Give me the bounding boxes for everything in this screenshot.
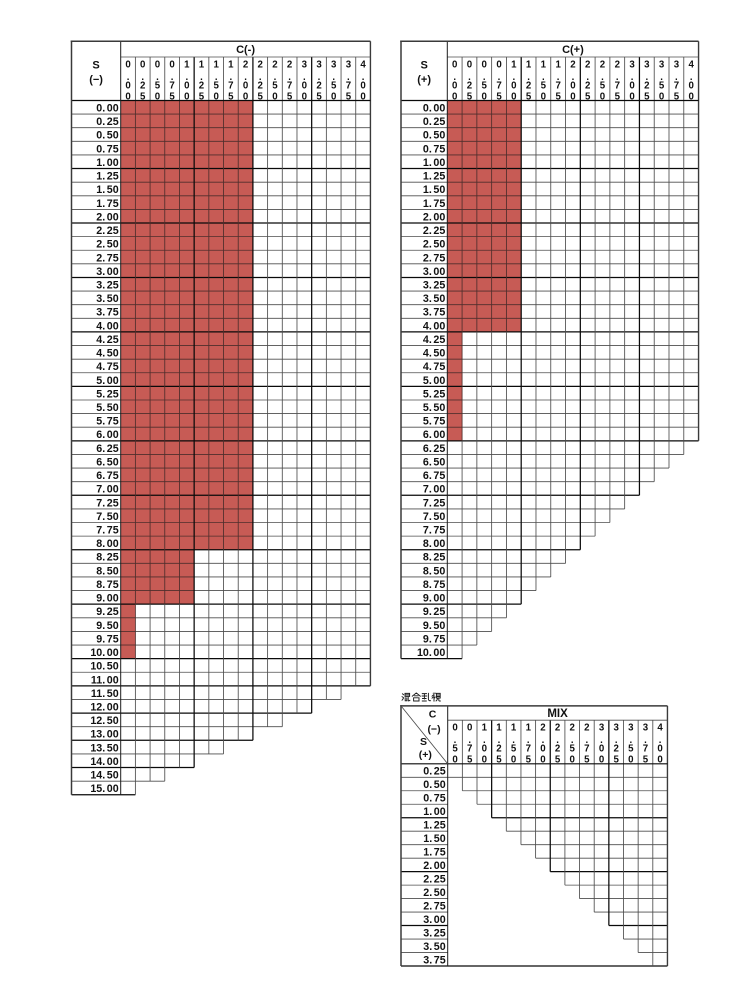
svg-text:5: 5 — [199, 91, 205, 102]
svg-text:0: 0 — [599, 744, 604, 755]
svg-text:5.50: 5.50 — [96, 402, 118, 414]
svg-text:0: 0 — [125, 60, 130, 71]
svg-text:0: 0 — [140, 60, 145, 71]
svg-text:5.25: 5.25 — [96, 388, 118, 400]
svg-text:6.50: 6.50 — [96, 456, 118, 468]
svg-text:5: 5 — [496, 91, 502, 102]
svg-text:3: 3 — [644, 60, 650, 71]
svg-text:5: 5 — [526, 91, 532, 102]
svg-text:2: 2 — [258, 60, 263, 71]
svg-text:7.75: 7.75 — [96, 525, 118, 537]
svg-text:5: 5 — [585, 91, 591, 102]
svg-text:3.25: 3.25 — [423, 927, 445, 939]
svg-text:2: 2 — [467, 80, 472, 91]
svg-text:3.50: 3.50 — [423, 941, 445, 953]
svg-text:7.00: 7.00 — [423, 484, 445, 496]
svg-text:1: 1 — [184, 60, 190, 71]
svg-text:6.75: 6.75 — [96, 470, 118, 482]
svg-text:0: 0 — [360, 80, 365, 91]
svg-text:(+): (+) — [419, 749, 432, 761]
svg-text:2: 2 — [613, 744, 618, 755]
svg-text:5: 5 — [316, 91, 322, 102]
svg-text:1.50: 1.50 — [96, 184, 118, 196]
svg-text:9.50: 9.50 — [96, 620, 118, 632]
svg-text:5: 5 — [467, 755, 473, 766]
svg-text:1: 1 — [511, 60, 517, 71]
svg-text:7.00: 7.00 — [96, 484, 118, 496]
svg-text:2.25: 2.25 — [423, 225, 445, 237]
svg-text:S: S — [92, 60, 99, 72]
svg-text:0.25: 0.25 — [423, 116, 445, 128]
svg-text:0: 0 — [184, 80, 189, 91]
svg-text:2: 2 — [570, 60, 575, 71]
svg-text:5: 5 — [555, 91, 561, 102]
svg-text:2.75: 2.75 — [423, 252, 445, 264]
svg-text:5: 5 — [467, 91, 473, 102]
svg-text:5: 5 — [213, 80, 219, 91]
svg-text:9.25: 9.25 — [96, 606, 118, 618]
svg-text:1: 1 — [526, 723, 532, 734]
svg-text:5: 5 — [228, 91, 234, 102]
svg-text:5: 5 — [555, 755, 561, 766]
svg-text:1.75: 1.75 — [423, 198, 445, 210]
svg-text:2: 2 — [555, 744, 560, 755]
svg-text:7: 7 — [287, 80, 292, 91]
svg-text:2: 2 — [272, 60, 277, 71]
svg-text:0: 0 — [272, 91, 277, 102]
svg-text:1: 1 — [526, 60, 532, 71]
svg-text:0.75: 0.75 — [423, 793, 445, 805]
svg-text:0: 0 — [467, 60, 472, 71]
svg-text:0: 0 — [360, 91, 365, 102]
svg-text:6.25: 6.25 — [96, 443, 118, 455]
svg-text:1: 1 — [555, 60, 561, 71]
svg-text:0: 0 — [482, 744, 487, 755]
svg-text:7.75: 7.75 — [423, 525, 445, 537]
svg-text:1.25: 1.25 — [96, 171, 118, 183]
svg-text:1: 1 — [541, 60, 547, 71]
svg-text:5.50: 5.50 — [423, 402, 445, 414]
svg-text:4: 4 — [657, 723, 663, 734]
svg-text:(−): (−) — [89, 74, 103, 86]
svg-text:6.00: 6.00 — [423, 429, 445, 441]
svg-text:7.25: 7.25 — [96, 497, 118, 509]
svg-text:14.50: 14.50 — [90, 770, 118, 782]
svg-text:7: 7 — [346, 80, 351, 91]
svg-text:5: 5 — [346, 91, 352, 102]
svg-text:0: 0 — [452, 60, 457, 71]
svg-text:2.50: 2.50 — [96, 239, 118, 251]
svg-text:5: 5 — [570, 744, 576, 755]
svg-text:0: 0 — [599, 755, 604, 766]
svg-text:0.50: 0.50 — [96, 130, 118, 142]
svg-text:7: 7 — [674, 80, 679, 91]
svg-text:2: 2 — [584, 723, 589, 734]
svg-text:0.75: 0.75 — [96, 143, 118, 155]
svg-text:6.75: 6.75 — [423, 470, 445, 482]
svg-text:2.25: 2.25 — [423, 874, 445, 886]
svg-text:1: 1 — [496, 723, 502, 734]
svg-text:1.00: 1.00 — [96, 157, 118, 169]
svg-text:1: 1 — [228, 60, 234, 71]
svg-text:1.25: 1.25 — [423, 820, 445, 832]
svg-text:0: 0 — [482, 91, 487, 102]
svg-text:2: 2 — [585, 60, 590, 71]
svg-text:1.00: 1.00 — [423, 806, 445, 818]
svg-text:7: 7 — [228, 80, 233, 91]
svg-text:6.25: 6.25 — [423, 443, 445, 455]
svg-text:2: 2 — [243, 60, 248, 71]
svg-text:5: 5 — [272, 80, 278, 91]
svg-text:5: 5 — [659, 80, 665, 91]
svg-text:7: 7 — [467, 744, 472, 755]
svg-text:2: 2 — [287, 60, 292, 71]
svg-text:8.50: 8.50 — [423, 565, 445, 577]
svg-text:14.00: 14.00 — [90, 756, 118, 768]
svg-text:7: 7 — [526, 744, 531, 755]
svg-text:4.75: 4.75 — [96, 361, 118, 373]
svg-text:5: 5 — [331, 80, 337, 91]
svg-text:4.00: 4.00 — [96, 320, 118, 332]
svg-text:3: 3 — [643, 723, 649, 734]
svg-text:0.50: 0.50 — [423, 779, 445, 791]
svg-text:0: 0 — [452, 723, 457, 734]
svg-text:3: 3 — [302, 60, 308, 71]
svg-text:2.00: 2.00 — [423, 860, 445, 872]
svg-text:3.75: 3.75 — [423, 307, 445, 319]
svg-text:0: 0 — [540, 744, 545, 755]
svg-text:13.50: 13.50 — [90, 742, 118, 754]
svg-text:1.00: 1.00 — [423, 157, 445, 169]
svg-text:12.50: 12.50 — [90, 715, 118, 727]
svg-text:7: 7 — [496, 80, 501, 91]
svg-text:0.00: 0.00 — [96, 103, 118, 115]
svg-text:5: 5 — [452, 744, 458, 755]
svg-text:2.50: 2.50 — [423, 887, 445, 899]
svg-text:7.50: 7.50 — [423, 511, 445, 523]
svg-text:5.25: 5.25 — [423, 388, 445, 400]
svg-text:7: 7 — [643, 744, 648, 755]
svg-text:C(-): C(-) — [236, 44, 255, 56]
svg-text:0: 0 — [331, 91, 336, 102]
svg-text:11.00: 11.00 — [91, 674, 119, 686]
svg-text:5: 5 — [541, 80, 547, 91]
svg-text:1.25: 1.25 — [423, 171, 445, 183]
svg-text:(−): (−) — [427, 723, 440, 735]
svg-text:8.75: 8.75 — [423, 579, 445, 591]
svg-text:1: 1 — [199, 60, 205, 71]
svg-text:10.00: 10.00 — [90, 647, 118, 659]
svg-text:5.75: 5.75 — [96, 416, 118, 428]
svg-text:2.25: 2.25 — [96, 225, 118, 237]
svg-text:9.25: 9.25 — [423, 606, 445, 618]
svg-text:4.50: 4.50 — [96, 348, 118, 360]
svg-text:0: 0 — [570, 755, 575, 766]
svg-text:0: 0 — [213, 91, 218, 102]
svg-text:0.50: 0.50 — [423, 130, 445, 142]
svg-text:0: 0 — [125, 91, 130, 102]
svg-text:13.00: 13.00 — [90, 729, 118, 741]
svg-text:1.75: 1.75 — [96, 198, 118, 210]
svg-text:0: 0 — [657, 755, 662, 766]
svg-text:3.25: 3.25 — [423, 279, 445, 291]
svg-text:2.00: 2.00 — [96, 211, 118, 223]
svg-text:5: 5 — [615, 91, 621, 102]
svg-text:8.50: 8.50 — [96, 565, 118, 577]
svg-text:2: 2 — [615, 60, 620, 71]
svg-text:5: 5 — [496, 755, 502, 766]
svg-text:0.00: 0.00 — [423, 103, 445, 115]
svg-text:0: 0 — [629, 91, 634, 102]
svg-text:2: 2 — [258, 80, 263, 91]
svg-text:2: 2 — [555, 723, 560, 734]
svg-text:0: 0 — [155, 60, 160, 71]
svg-text:7.25: 7.25 — [423, 497, 445, 509]
svg-text:2: 2 — [140, 80, 145, 91]
svg-text:9.00: 9.00 — [96, 593, 118, 605]
svg-text:5: 5 — [674, 91, 680, 102]
svg-text:3: 3 — [628, 723, 634, 734]
svg-text:2: 2 — [316, 80, 321, 91]
svg-text:5.00: 5.00 — [423, 375, 445, 387]
svg-text:0: 0 — [482, 755, 487, 766]
svg-text:4: 4 — [688, 60, 694, 71]
svg-text:0: 0 — [243, 91, 248, 102]
svg-text:2: 2 — [496, 744, 501, 755]
svg-text:1: 1 — [482, 723, 488, 734]
svg-text:0: 0 — [243, 80, 248, 91]
svg-text:MIX: MIX — [547, 708, 568, 720]
svg-text:11.50: 11.50 — [91, 688, 119, 700]
svg-text:S: S — [420, 736, 427, 748]
svg-text:0: 0 — [628, 755, 633, 766]
svg-text:2: 2 — [199, 80, 204, 91]
svg-text:0: 0 — [688, 80, 693, 91]
svg-text:6.50: 6.50 — [423, 456, 445, 468]
svg-text:0: 0 — [570, 91, 575, 102]
svg-text:1: 1 — [213, 60, 219, 71]
svg-text:2.00: 2.00 — [423, 211, 445, 223]
svg-text:0: 0 — [688, 91, 693, 102]
svg-text:2.75: 2.75 — [423, 900, 445, 912]
svg-text:3: 3 — [674, 60, 680, 71]
svg-text:3: 3 — [659, 60, 665, 71]
svg-text:2: 2 — [600, 60, 605, 71]
svg-text:6.00: 6.00 — [96, 429, 118, 441]
svg-text:3.50: 3.50 — [96, 293, 118, 305]
svg-text:5: 5 — [155, 80, 161, 91]
svg-text:1: 1 — [511, 723, 517, 734]
svg-text:0.75: 0.75 — [423, 143, 445, 155]
svg-text:7: 7 — [615, 80, 620, 91]
svg-text:5: 5 — [613, 755, 619, 766]
svg-text:4.25: 4.25 — [423, 334, 445, 346]
svg-text:5: 5 — [584, 755, 590, 766]
svg-text:3: 3 — [331, 60, 337, 71]
svg-text:4: 4 — [360, 60, 366, 71]
svg-text:0: 0 — [452, 755, 457, 766]
svg-text:1.75: 1.75 — [423, 847, 445, 859]
svg-text:5: 5 — [628, 744, 634, 755]
svg-text:2.75: 2.75 — [96, 252, 118, 264]
svg-text:0: 0 — [155, 91, 160, 102]
svg-text:4.50: 4.50 — [423, 348, 445, 360]
svg-text:9.75: 9.75 — [96, 633, 118, 645]
svg-text:10.50: 10.50 — [90, 661, 118, 673]
svg-text:3: 3 — [346, 60, 352, 71]
svg-text:0: 0 — [184, 91, 189, 102]
svg-text:3.00: 3.00 — [96, 266, 118, 278]
svg-text:0: 0 — [467, 723, 472, 734]
svg-text:S: S — [420, 60, 427, 72]
svg-text:10.00: 10.00 — [417, 647, 445, 659]
svg-text:0: 0 — [452, 91, 457, 102]
svg-text:8.25: 8.25 — [96, 552, 118, 564]
svg-text:0: 0 — [511, 80, 516, 91]
svg-text:8.25: 8.25 — [423, 552, 445, 564]
svg-text:9.00: 9.00 — [423, 593, 445, 605]
svg-text:5.75: 5.75 — [423, 416, 445, 428]
svg-text:5: 5 — [526, 755, 532, 766]
svg-text:0.25: 0.25 — [96, 116, 118, 128]
svg-text:12.00: 12.00 — [90, 701, 118, 713]
svg-text:3.00: 3.00 — [423, 266, 445, 278]
svg-text:5: 5 — [644, 91, 650, 102]
svg-text:5: 5 — [511, 744, 517, 755]
svg-text:5.00: 5.00 — [96, 375, 118, 387]
svg-text:3.25: 3.25 — [96, 279, 118, 291]
svg-text:3.75: 3.75 — [96, 307, 118, 319]
svg-text:15.00: 15.00 — [90, 783, 118, 795]
svg-text:0: 0 — [482, 60, 487, 71]
svg-text:0: 0 — [302, 80, 307, 91]
svg-text:0: 0 — [659, 91, 664, 102]
svg-text:0: 0 — [169, 60, 174, 71]
svg-text:5: 5 — [258, 91, 264, 102]
svg-text:1.50: 1.50 — [423, 184, 445, 196]
svg-text:C: C — [429, 709, 437, 721]
svg-text:5: 5 — [287, 91, 293, 102]
svg-text:7.50: 7.50 — [96, 511, 118, 523]
svg-text:2: 2 — [540, 723, 545, 734]
svg-text:0: 0 — [600, 91, 605, 102]
svg-text:3.75: 3.75 — [423, 954, 445, 966]
svg-text:5: 5 — [169, 91, 175, 102]
svg-text:7: 7 — [584, 744, 589, 755]
svg-text:3.50: 3.50 — [423, 293, 445, 305]
svg-text:9.50: 9.50 — [423, 620, 445, 632]
svg-text:0: 0 — [540, 755, 545, 766]
svg-text:5: 5 — [643, 755, 649, 766]
svg-text:7: 7 — [555, 80, 560, 91]
svg-text:8.75: 8.75 — [96, 579, 118, 591]
svg-text:0: 0 — [511, 91, 516, 102]
svg-text:3: 3 — [613, 723, 619, 734]
svg-text:0: 0 — [452, 80, 457, 91]
svg-text:4.25: 4.25 — [96, 334, 118, 346]
svg-text:3: 3 — [629, 60, 635, 71]
svg-text:8.00: 8.00 — [423, 538, 445, 550]
svg-text:3.00: 3.00 — [423, 914, 445, 926]
svg-text:4.75: 4.75 — [423, 361, 445, 373]
svg-text:2: 2 — [526, 80, 531, 91]
svg-text:0: 0 — [496, 60, 501, 71]
svg-text:2: 2 — [570, 723, 575, 734]
svg-text:5: 5 — [140, 91, 146, 102]
svg-text:2: 2 — [585, 80, 590, 91]
svg-text:7: 7 — [169, 80, 174, 91]
svg-text:4.00: 4.00 — [423, 320, 445, 332]
svg-text:0.25: 0.25 — [423, 766, 445, 778]
svg-text:0: 0 — [629, 80, 634, 91]
svg-text:5: 5 — [600, 80, 606, 91]
svg-text:0: 0 — [302, 91, 307, 102]
svg-text:2: 2 — [644, 80, 649, 91]
svg-text:0: 0 — [541, 91, 546, 102]
svg-text:9.75: 9.75 — [423, 633, 445, 645]
svg-text:0: 0 — [657, 744, 662, 755]
svg-text:3: 3 — [599, 723, 605, 734]
svg-text:(+): (+) — [417, 74, 431, 86]
svg-text:8.00: 8.00 — [96, 538, 118, 550]
svg-text:0: 0 — [125, 80, 130, 91]
svg-text:5: 5 — [482, 80, 488, 91]
svg-text:0: 0 — [570, 80, 575, 91]
svg-text:C(+): C(+) — [562, 44, 584, 56]
svg-text:1.50: 1.50 — [423, 833, 445, 845]
svg-text:3: 3 — [316, 60, 322, 71]
svg-text:2.50: 2.50 — [423, 239, 445, 251]
svg-text:0: 0 — [511, 755, 516, 766]
